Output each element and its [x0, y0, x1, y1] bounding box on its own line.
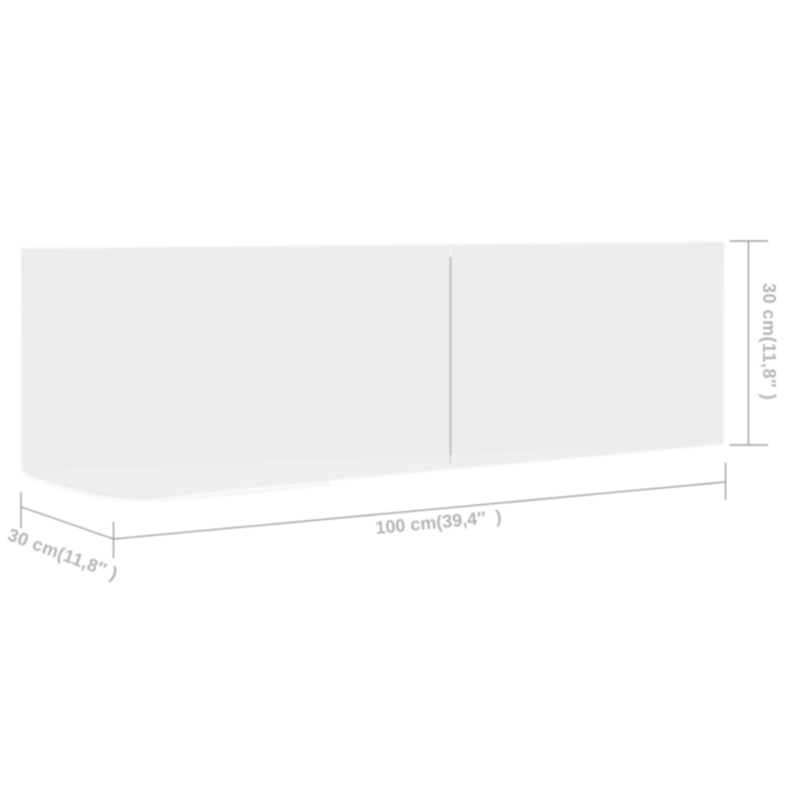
- svg-text:30 cm(11,8″ ): 30 cm(11,8″ ): [5, 525, 121, 584]
- svg-text:100 cm(39,4″ ): 100 cm(39,4″ ): [375, 506, 503, 538]
- svg-text:30 cm(11,8″ ): 30 cm(11,8″ ): [759, 283, 779, 400]
